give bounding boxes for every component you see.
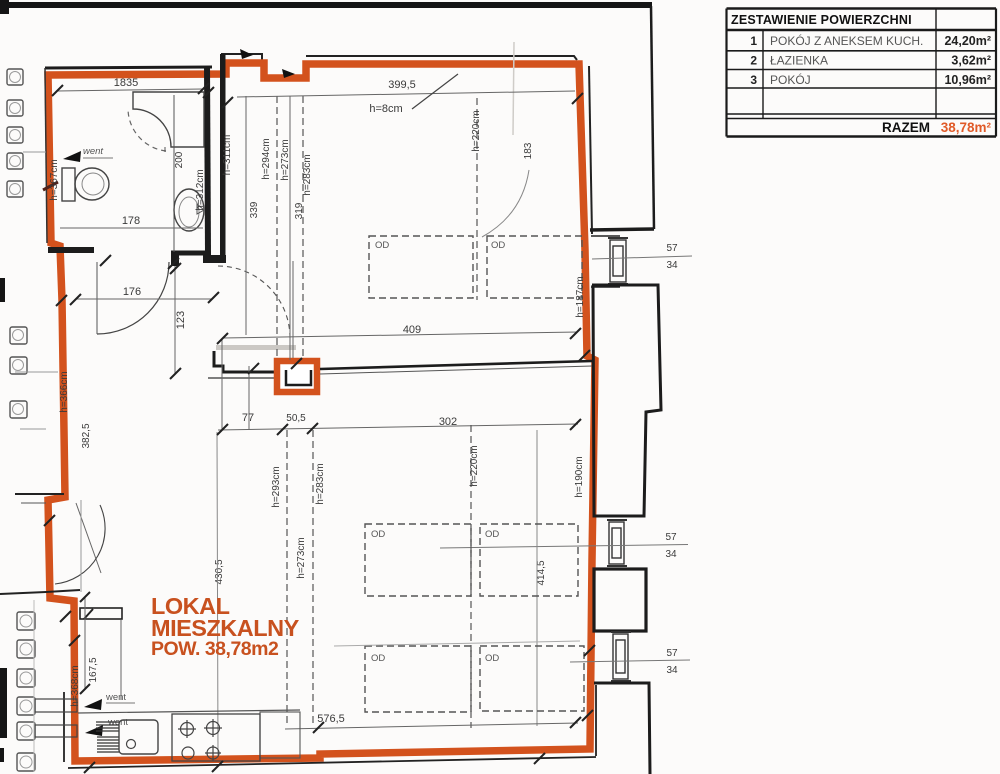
svg-text:3: 3 [750,73,757,87]
svg-text:77: 77 [242,412,254,424]
svg-text:h=8cm: h=8cm [369,103,402,115]
svg-text:34: 34 [665,549,677,560]
svg-text:57: 57 [666,243,678,254]
svg-text:h=283cm: h=283cm [302,154,313,195]
svg-text:h=366cm: h=366cm [59,371,70,412]
svg-text:576,5: 576,5 [317,713,345,725]
svg-text:178: 178 [122,215,140,227]
svg-text:38,78m²: 38,78m² [941,120,992,135]
svg-text:176: 176 [123,286,141,298]
svg-text:h=273cm: h=273cm [280,139,291,180]
svg-text:h=283cm: h=283cm [315,463,326,504]
svg-text:ZESTAWIENIE POWIERZCHNI: ZESTAWIENIE POWIERZCHNI [731,13,912,27]
svg-text:414,5: 414,5 [536,560,547,585]
svg-text:h=311cm: h=311cm [222,135,233,176]
svg-text:ŁAZIENKA: ŁAZIENKA [770,54,828,68]
svg-text:OD: OD [371,529,385,540]
svg-text:h=187cm: h=187cm [575,276,586,317]
svg-text:1835: 1835 [114,77,138,89]
svg-text:h=220cm: h=220cm [471,110,482,151]
svg-text:2: 2 [750,54,757,68]
svg-text:OD: OD [491,240,505,251]
svg-text:167,5: 167,5 [88,657,99,682]
svg-text:10,96m²: 10,96m² [944,73,991,87]
svg-text:RAZEM: RAZEM [882,120,930,135]
svg-text:34: 34 [666,260,678,271]
svg-text:409: 409 [403,324,421,336]
svg-text:200: 200 [174,151,185,168]
svg-text:382,5: 382,5 [81,423,92,448]
svg-text:POKÓJ Z ANEKSEM KUCH.: POKÓJ Z ANEKSEM KUCH. [770,33,923,48]
svg-text:went: went [105,692,126,703]
svg-text:h=294cm: h=294cm [261,138,272,179]
svg-text:24,20m²: 24,20m² [944,34,991,48]
svg-text:183: 183 [523,142,534,159]
svg-text:57: 57 [665,532,677,543]
svg-text:430,5: 430,5 [214,559,225,584]
svg-text:OD: OD [485,529,499,540]
svg-text:123: 123 [175,311,187,329]
svg-text:POKÓJ: POKÓJ [770,72,811,87]
svg-text:57: 57 [666,648,678,659]
svg-text:50,5: 50,5 [286,413,306,424]
svg-text:3,62m²: 3,62m² [951,54,991,68]
svg-text:h=293cm: h=293cm [271,466,282,507]
svg-text:h=190cm: h=190cm [574,456,585,497]
svg-text:302: 302 [439,416,457,428]
svg-text:OD: OD [485,653,499,664]
svg-text:h=273cm: h=273cm [296,537,307,578]
svg-text:POW. 38,78m2: POW. 38,78m2 [151,638,279,660]
svg-text:h=367cm: h=367cm [49,159,60,200]
svg-text:went: went [83,146,103,157]
svg-text:319: 319 [294,202,305,219]
svg-text:h=312cm: h=312cm [195,169,206,210]
svg-text:399,5: 399,5 [388,79,416,91]
svg-text:1: 1 [750,34,757,48]
svg-text:34: 34 [666,665,678,676]
svg-text:OD: OD [375,240,389,251]
svg-text:339: 339 [249,201,260,218]
svg-text:OD: OD [371,653,385,664]
svg-text:h=220cm: h=220cm [469,445,480,486]
svg-text:h=368cm: h=368cm [70,665,81,706]
